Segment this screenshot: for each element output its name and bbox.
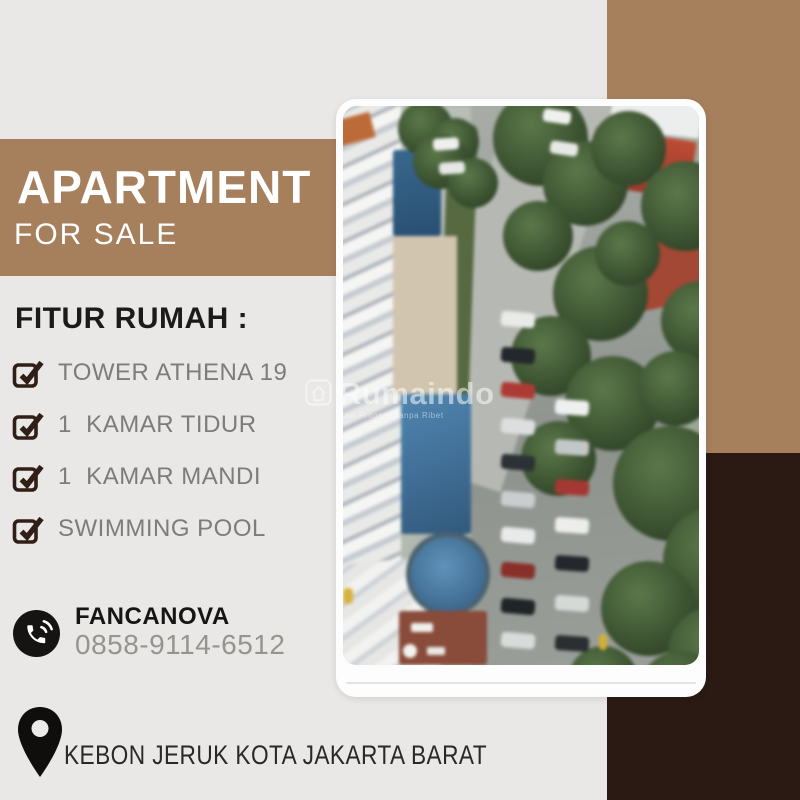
photo-parked-car xyxy=(555,399,590,416)
feature-label: SWIMMING POOL xyxy=(58,515,266,543)
features-heading: FITUR RUMAH : xyxy=(15,302,248,336)
photo-parked-car xyxy=(500,454,535,472)
photo-parked-car xyxy=(599,634,607,650)
feature-label: 1 KAMAR MANDI xyxy=(58,463,261,491)
contact-name: FANCANOVA xyxy=(75,604,230,630)
checkbox-checked-icon xyxy=(12,514,44,544)
photo-parked-car xyxy=(555,517,590,534)
checkbox-checked-icon xyxy=(12,358,44,388)
photo-parked-car xyxy=(500,562,535,580)
watermark: Rumaindo Cari Properti Tanpa Ribet xyxy=(305,379,495,420)
photo-parked-car xyxy=(555,439,590,456)
address-label: KEBON JERUK KOTA JAKARTA BARAT xyxy=(64,742,487,768)
photo-parked-car xyxy=(500,598,535,616)
photo-parked-car xyxy=(500,632,535,650)
feature-label: 1 KAMAR TIDUR xyxy=(58,411,257,439)
photo-lounger xyxy=(427,647,445,655)
watermark-brand: Rumaindo xyxy=(339,379,495,409)
photo-round-pool xyxy=(406,532,490,616)
photo-table xyxy=(403,644,417,658)
photo-parked-car xyxy=(555,479,590,496)
feature-item: SWIMMING POOL xyxy=(12,514,266,544)
photo-parked-car xyxy=(343,588,353,604)
photo-parked-car xyxy=(500,347,535,365)
photo-parked-car xyxy=(500,311,535,329)
feature-item: 1 KAMAR MANDI xyxy=(12,462,261,492)
house-logo-icon xyxy=(305,379,332,406)
photo-tree xyxy=(595,221,660,286)
phone-call-icon xyxy=(13,610,60,657)
watermark-tagline: Cari Properti Tanpa Ribet xyxy=(339,411,495,420)
photo-parked-car xyxy=(500,418,535,436)
photo-tree xyxy=(503,201,573,271)
photo-parked-car xyxy=(555,595,590,612)
photo-parked-car xyxy=(500,527,535,545)
photo-parked-car xyxy=(500,491,535,509)
checkbox-checked-icon xyxy=(12,462,44,492)
photo-parked-car xyxy=(500,382,535,400)
checkbox-checked-icon xyxy=(12,410,44,440)
photo-lounger xyxy=(411,623,433,632)
photo-parked-car xyxy=(439,161,466,175)
feature-item: 1 KAMAR TIDUR xyxy=(12,410,257,440)
photo-parked-car xyxy=(555,555,590,572)
feature-label: TOWER ATHENA 19 xyxy=(58,359,287,387)
flyer-canvas: APARTMENT FOR SALE FITUR RUMAH : TOWER A… xyxy=(0,0,800,800)
photo-parked-car xyxy=(433,137,460,151)
location-pin-icon xyxy=(17,706,63,778)
feature-item: TOWER ATHENA 19 xyxy=(12,358,287,388)
contact-phone-number: 0858-9114-6512 xyxy=(75,630,285,660)
photo-pool-deck xyxy=(393,236,457,394)
photo-parked-car xyxy=(555,635,590,652)
